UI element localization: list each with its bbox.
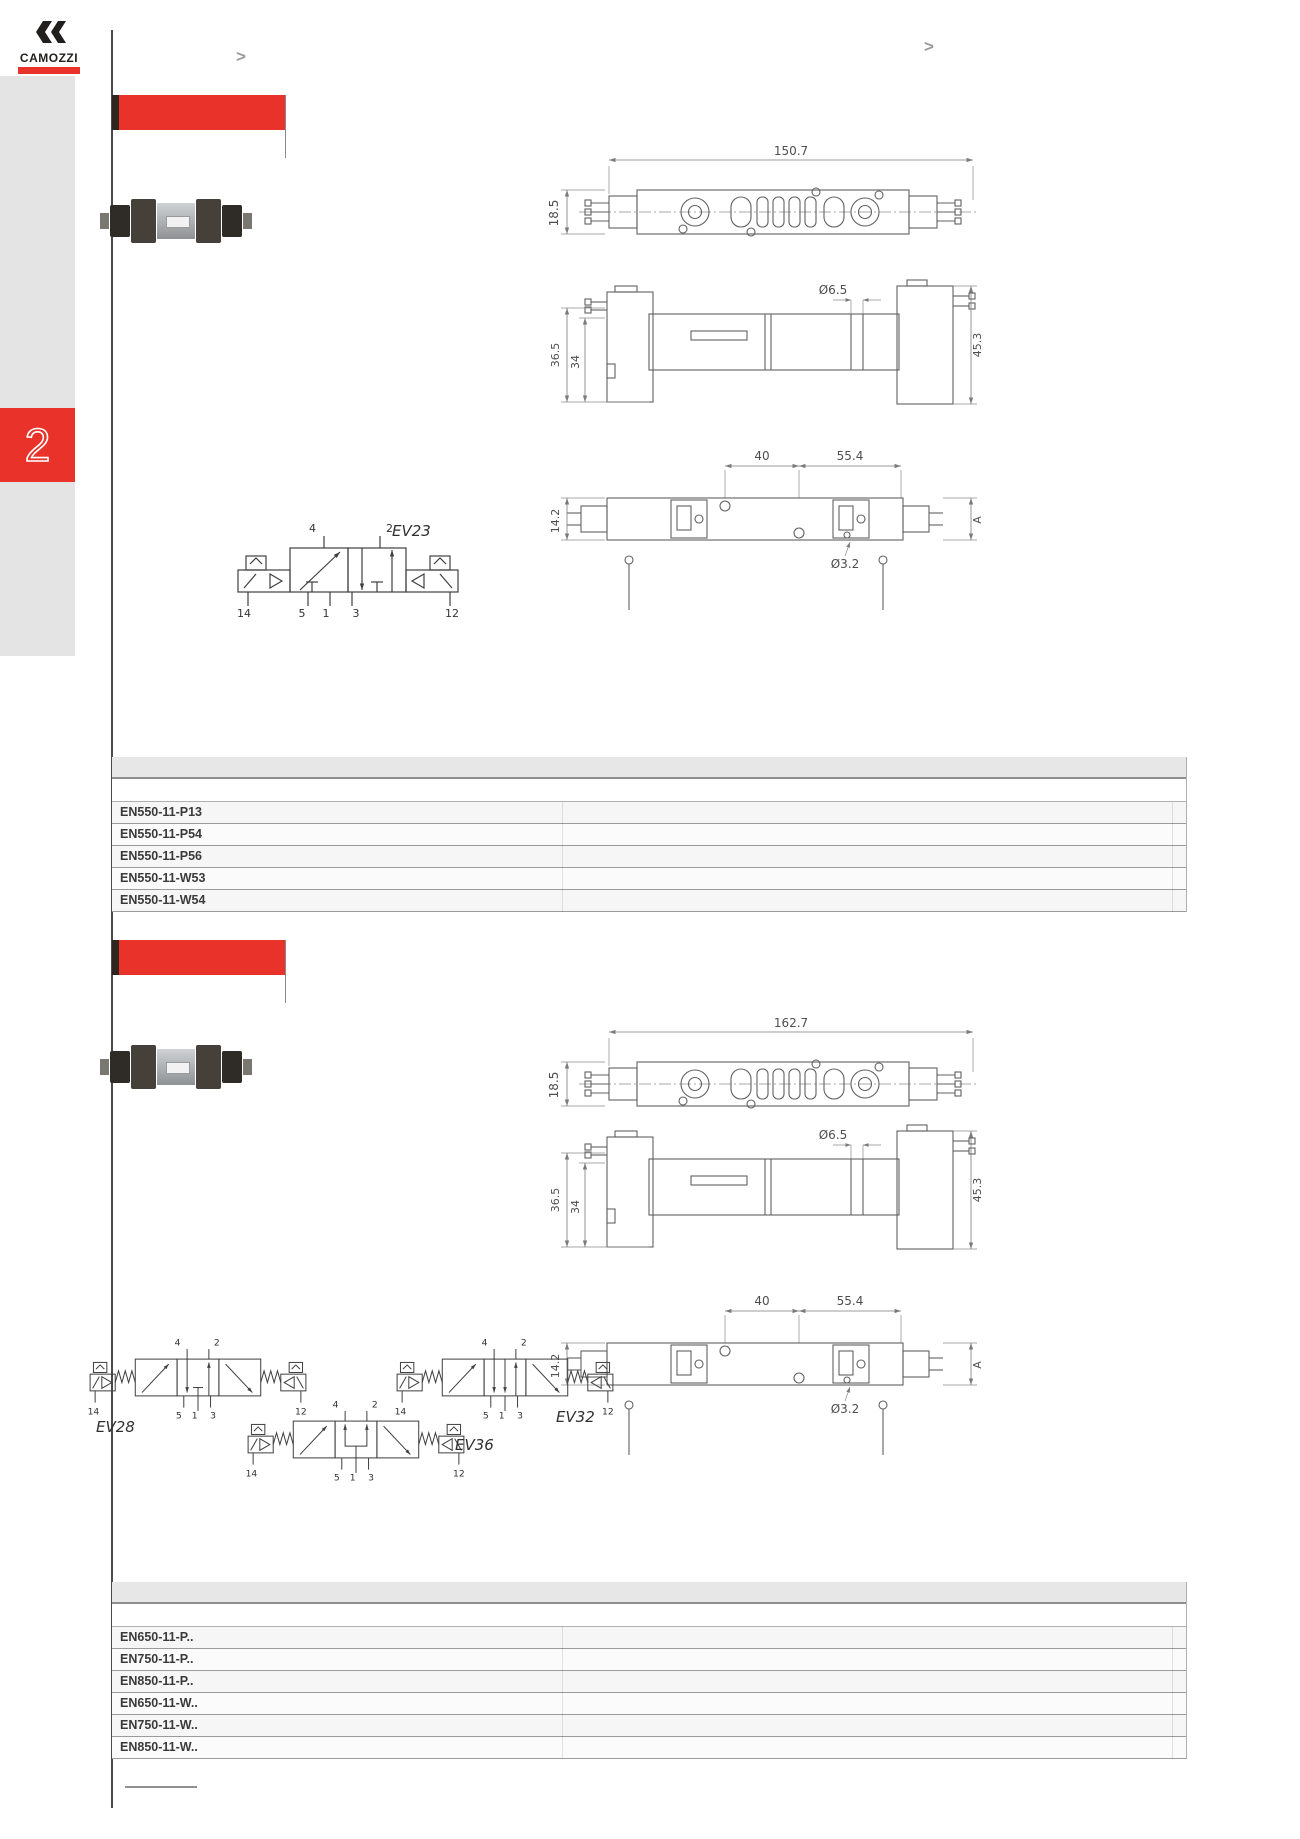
port-label: 4 [175,1338,181,1349]
section-header-bar [112,95,285,130]
section-bar-notch [112,940,119,975]
end-plug [110,205,130,237]
port-label: 5 [176,1410,182,1421]
port-label: 4 [309,522,316,535]
connector-pins [243,213,252,229]
dim-height-outer: 36.5 [549,343,562,368]
port-label: 4 [482,1338,488,1349]
dim-ref-letter: A [971,1361,984,1369]
table-row: EN850-11-P.. [112,1671,1186,1693]
camozzi-logo: CAMOZZI [18,20,80,74]
table-column-divider [1172,802,1173,912]
connector-pins [100,1059,109,1075]
dim-overall-height: 18.5 [547,200,561,227]
port-label: 1 [323,607,330,618]
port-label: 14 [88,1406,100,1417]
table-column-divider [1172,1627,1173,1759]
chevron-right-icon: > [924,38,934,55]
port-label: 5 [334,1472,340,1483]
symbol-label-ev23: EV23 [392,522,431,540]
port-label: 5 [483,1410,489,1421]
valve-symbol-ev23: 4 2 5 1 3 14 12 [212,518,522,618]
solenoid-block [196,199,220,243]
table-row: EN750-11-W.. [112,1715,1186,1737]
table-header-band [112,1582,1186,1604]
solenoid-block [131,199,155,243]
table-column-divider [562,802,563,912]
port-label: 4 [333,1400,339,1411]
section-bar-notch [112,95,119,130]
content-left-rule [111,30,113,1808]
table-row: EN650-11-P.. [112,1627,1186,1649]
product-photo [100,1038,252,1096]
port-label: 12 [602,1406,614,1417]
solenoid-block [131,1045,155,1089]
table-header-band [112,757,1186,779]
port-label: 1 [192,1410,198,1421]
table-row: EN550-11-W54 [112,890,1186,912]
parts-table: EN650-11-P.. EN750-11-P.. EN850-11-P.. E… [112,1582,1187,1759]
symbol-label-ev28: EV28 [96,1418,135,1436]
table-row: EN850-11-W.. [112,1737,1186,1759]
table-subheader-row [112,1604,1186,1627]
valve-body [157,1049,196,1085]
valve-sticker [166,216,190,228]
port-label: 2 [372,1400,378,1411]
dim-overall-height: 18.5 [547,1072,561,1099]
symbol-label-ev36: EV36 [455,1436,494,1454]
dim-pitch-right: 55.4 [837,449,864,463]
port-label: 1 [350,1472,356,1483]
table-row: EN650-11-W.. [112,1693,1186,1715]
port-label: 5 [299,607,306,618]
dim-hole-bottom: Ø3.2 [831,557,860,571]
table-subheader-row [112,779,1186,802]
drawing-top-view: 150.7 18.5 [545,140,985,255]
drawing-front-view: Ø6.5 36.5 34 45.3 [545,252,985,427]
table-row: EN550-11-P56 [112,846,1186,868]
chapter-tab: 2 [0,408,75,482]
footer-rule [125,1786,197,1788]
dim-overall-width: 162.7 [774,1016,808,1030]
drawing-bottom-view: 40 55.4 14.2 A Ø3.2 [545,436,985,656]
dim-hole-top: Ø6.5 [819,283,848,297]
port-label: 12 [453,1468,465,1479]
table-row: EN550-11-P54 [112,824,1186,846]
symbol-label-ev32: EV32 [556,1408,595,1426]
sidebar-band [0,76,75,656]
camozzi-logo-icon [31,20,67,46]
dim-hole-top: Ø6.5 [819,1128,848,1142]
section-header-bar [112,940,285,975]
connector-pins [100,213,109,229]
dim-height-right: 45.3 [971,333,984,358]
section-bar-rule [285,95,286,158]
port-label: 3 [353,607,360,618]
port-label: 3 [210,1410,216,1421]
dim-height-outer: 36.5 [549,1188,562,1213]
table-row: EN750-11-P.. [112,1649,1186,1671]
dim-height-right: 45.3 [971,1178,984,1203]
dim-pitch-left: 40 [754,1294,769,1308]
section-bar-rule [285,940,286,1003]
dim-pitch-left: 40 [754,449,769,463]
solenoid-block [196,1045,220,1089]
port-label: 2 [521,1338,527,1349]
dim-hole-bottom: Ø3.2 [831,1402,860,1416]
valve-body [157,203,196,239]
port-label: 14 [237,607,251,618]
port-label: 2 [214,1338,220,1349]
port-label: 3 [517,1410,523,1421]
brand-name: CAMOZZI [18,51,80,65]
table-column-divider [562,1627,563,1759]
dim-height-inner: 34 [569,355,582,369]
dim-base-height: 14.2 [549,509,562,534]
end-plug [222,205,242,237]
connector-pins [243,1059,252,1075]
port-label: 1 [499,1410,505,1421]
port-label: 12 [445,607,459,618]
drawing-front-view: Ø6.5 36.5 34 45.3 [545,1097,985,1272]
valve-sticker [166,1062,190,1074]
parts-table: EN550-11-P13 EN550-11-P54 EN550-11-P56 E… [112,757,1187,912]
dim-ref-letter: A [971,516,984,524]
catalog-page: 2 CAMOZZI > > 150.7 18.5 [0,0,1300,1839]
dim-overall-width: 150.7 [774,144,808,158]
end-plug [222,1051,242,1083]
valve-symbol-ev36: 4 2 5 1 3 14 12 [243,1396,469,1488]
dim-pitch-right: 55.4 [837,1294,864,1308]
end-plug [110,1051,130,1083]
dim-height-inner: 34 [569,1200,582,1214]
table-row: EN550-11-P13 [112,802,1186,824]
port-label: 14 [246,1468,258,1479]
brand-underline [18,67,80,74]
product-photo [100,192,252,250]
chevron-right-icon: > [236,48,246,65]
table-row: EN550-11-W53 [112,868,1186,890]
port-label: 3 [368,1472,374,1483]
